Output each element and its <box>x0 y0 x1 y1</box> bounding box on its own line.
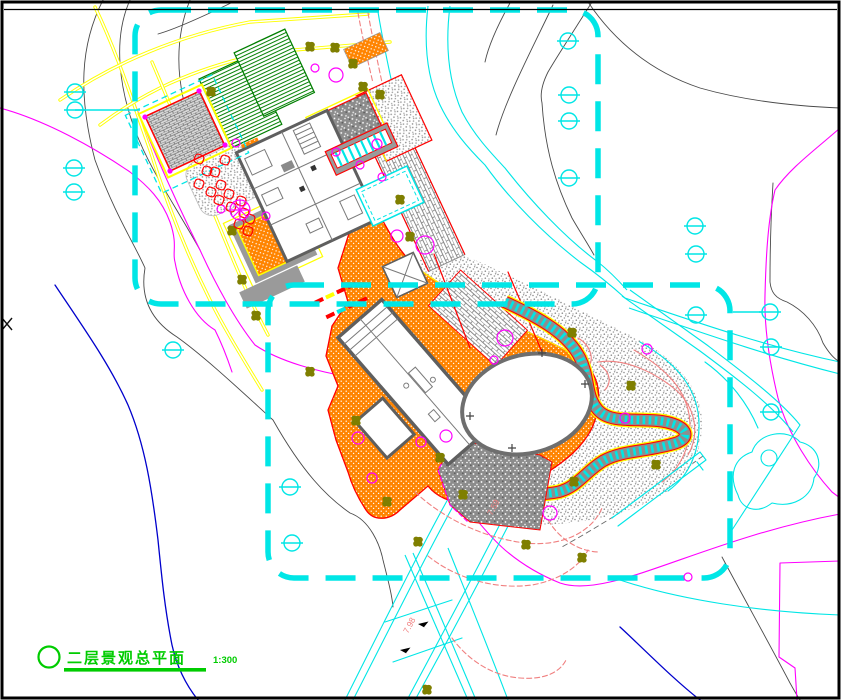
svg-text:7.98: 7.98 <box>401 615 418 635</box>
site-plan-drawing: 7.987.59 二层景观总平面 1:300 <box>0 0 841 700</box>
site-plan <box>125 29 706 530</box>
wheel-symbol <box>230 200 250 220</box>
drawing-scale: 1:300 <box>213 655 237 666</box>
cad-viewport: 7.987.59 二层景观总平面 1:300 <box>0 0 841 700</box>
drawing-title: 二层景观总平面 <box>67 649 186 667</box>
title-underline <box>64 668 206 672</box>
title-bullet-circle <box>39 647 60 668</box>
title-block: 二层景观总平面 1:300 <box>39 647 238 672</box>
